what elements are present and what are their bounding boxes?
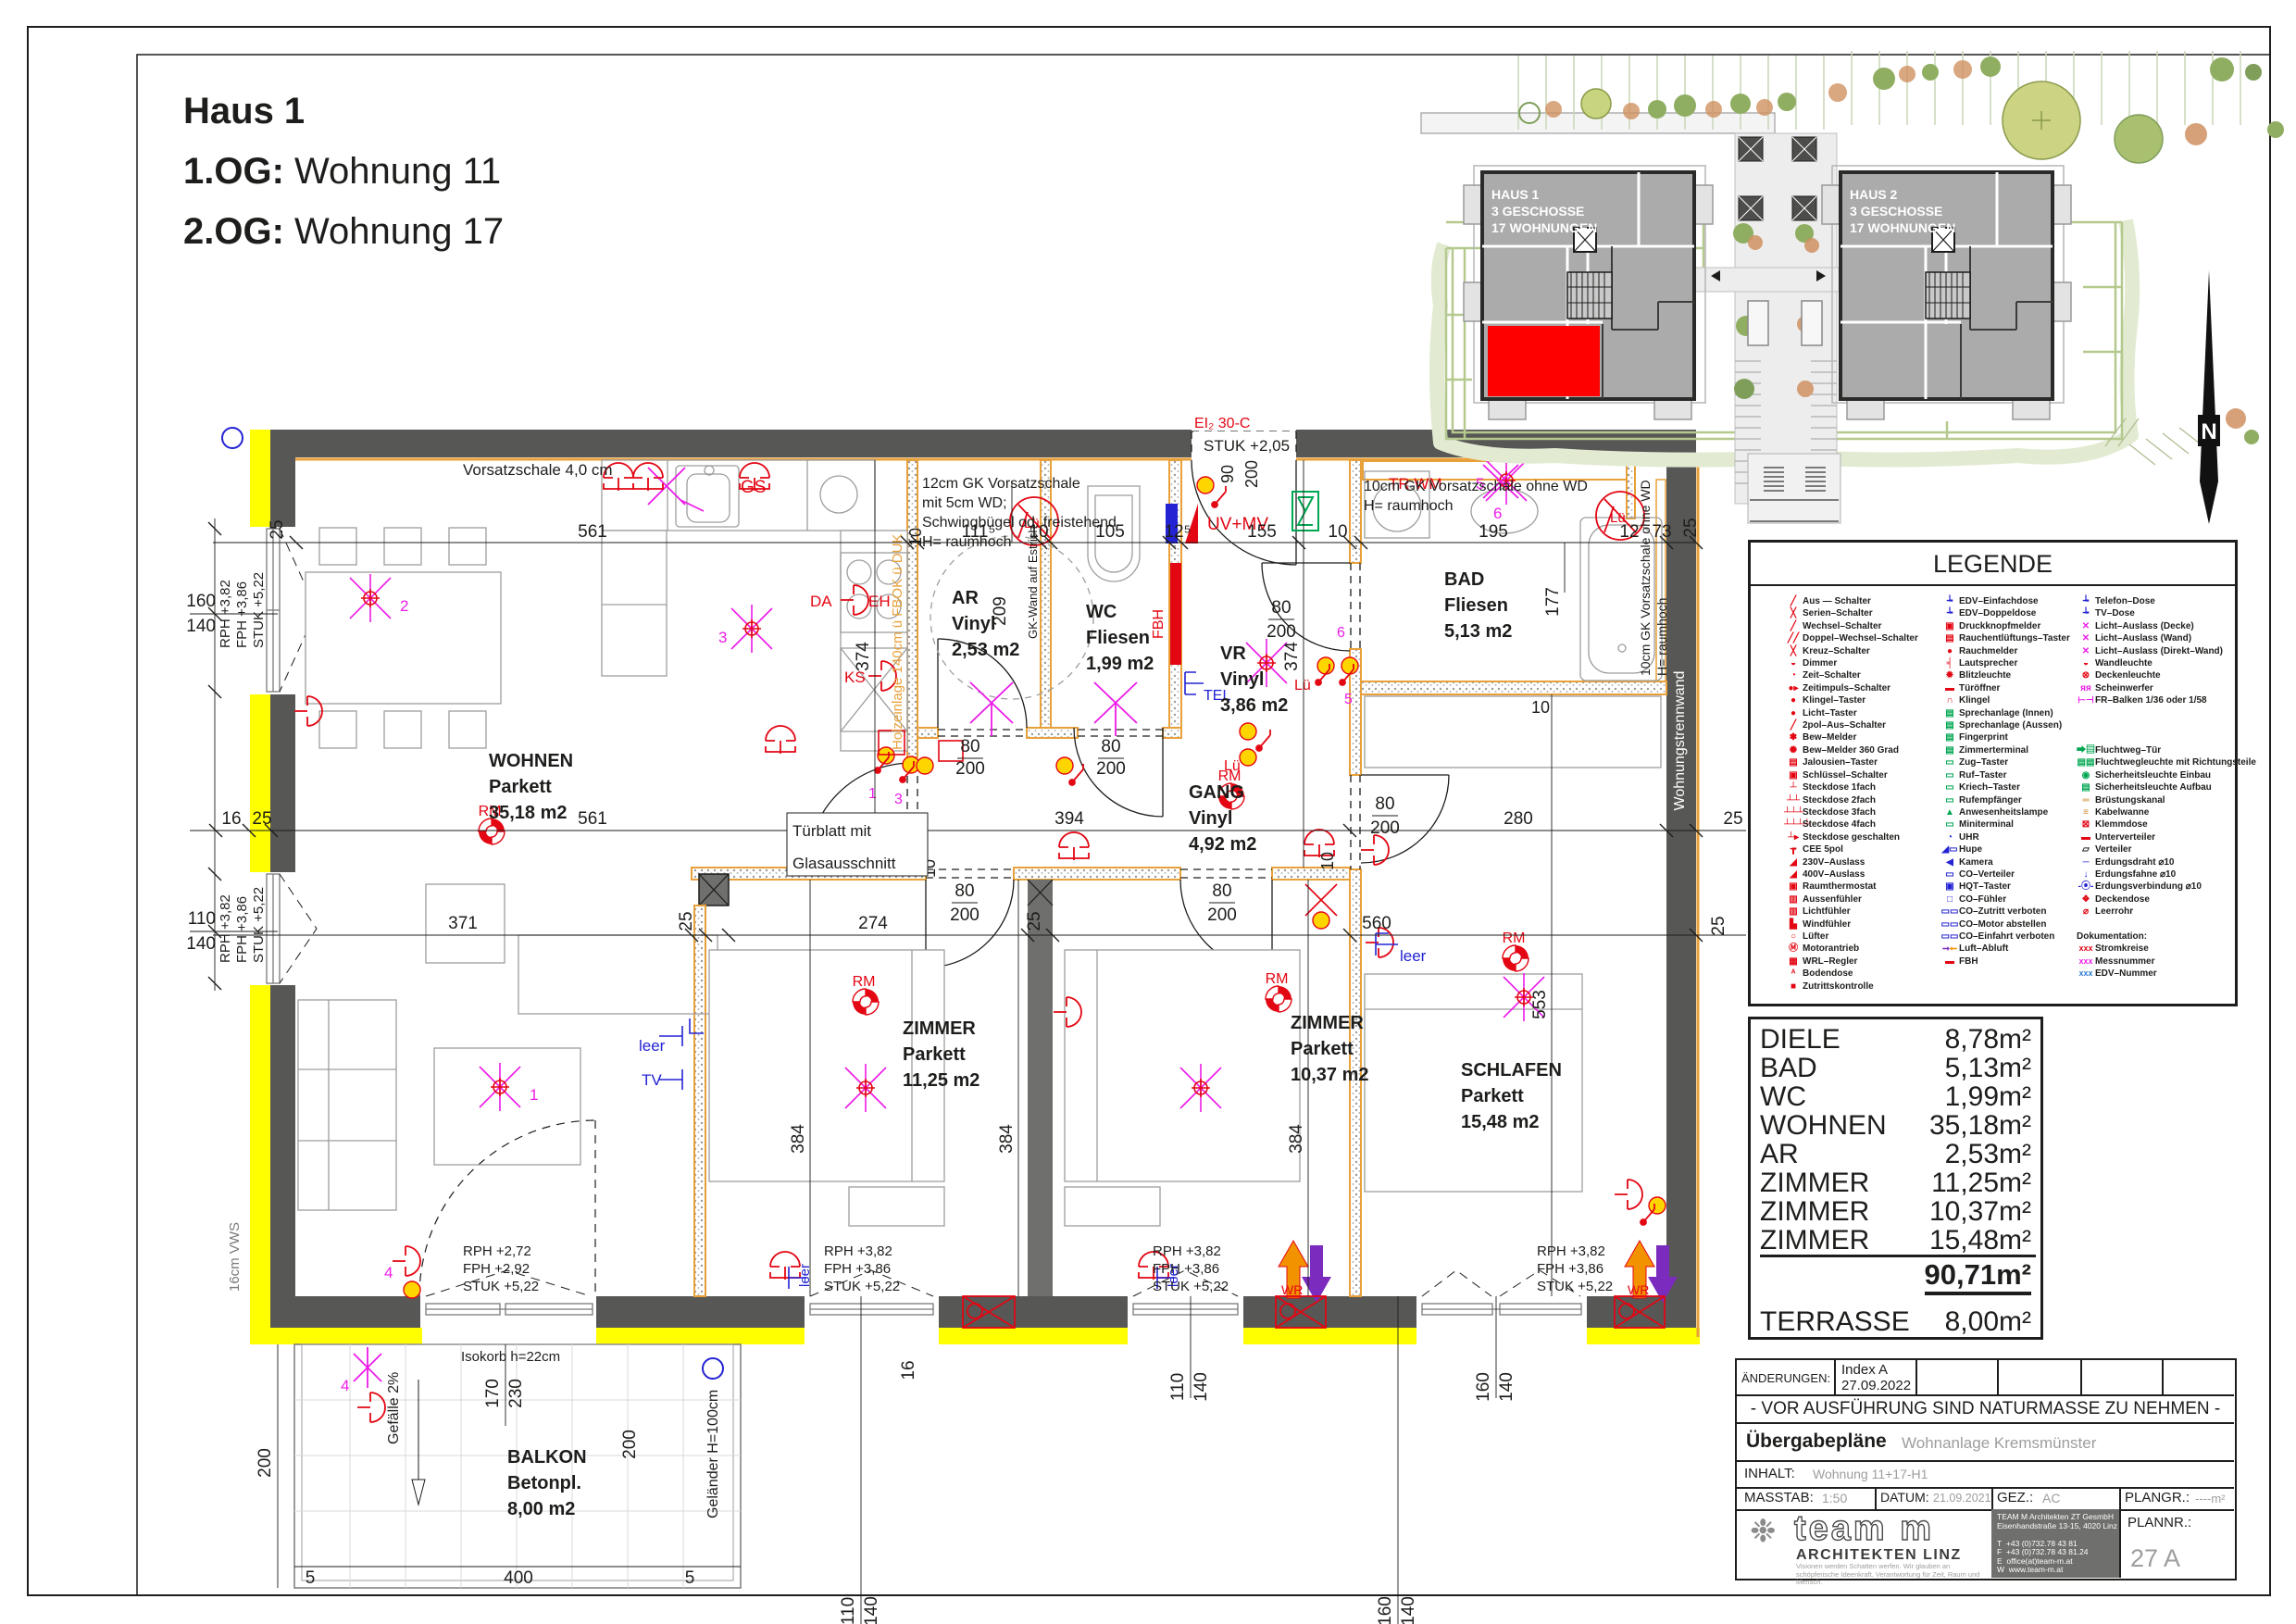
svg-text:H= raumhoch: H= raumhoch [1364, 498, 1454, 514]
svg-text:561: 561 [578, 522, 607, 542]
svg-text:mit 5cm WD;: mit 5cm WD; [922, 495, 1007, 511]
svg-text:25: 25 [1709, 916, 1728, 935]
svg-text:160: 160 [186, 592, 216, 611]
svg-text:6: 6 [1337, 625, 1345, 641]
svg-text:BALKON: BALKON [507, 1447, 587, 1468]
svg-text:10: 10 [1531, 698, 1550, 717]
svg-text:HAUS 1: HAUS 1 [1491, 187, 1540, 202]
svg-text:GANG: GANG [1189, 782, 1244, 803]
svg-text:HAUS 2: HAUS 2 [1850, 187, 1898, 202]
svg-text:394: 394 [1054, 809, 1084, 829]
svg-text:Betonpl.: Betonpl. [507, 1473, 581, 1493]
svg-text:STUK +2,05: STUK +2,05 [1204, 437, 1290, 455]
svg-text:Holzeinlage 140cm ü FBOK ü DUK: Holzeinlage 140cm ü FBOK ü DUK [890, 534, 905, 750]
svg-text:8,00 m2: 8,00 m2 [507, 1499, 575, 1519]
svg-text:3 GESCHOSSE: 3 GESCHOSSE [1850, 204, 1942, 219]
svg-text:FBH: FBH [1151, 609, 1167, 639]
svg-text:STUK +5,22: STUK +5,22 [1537, 1279, 1613, 1294]
svg-text:FPH +3,86: FPH +3,86 [234, 581, 250, 648]
svg-text:N: N [2201, 419, 2216, 444]
svg-text:ZIMMER: ZIMMER [903, 1018, 976, 1039]
svg-text:1,99 m2: 1,99 m2 [1086, 654, 1154, 674]
svg-text:384: 384 [789, 1124, 808, 1154]
svg-text:80: 80 [1375, 794, 1394, 814]
svg-text:80: 80 [1212, 881, 1231, 901]
svg-text:10: 10 [1318, 852, 1337, 870]
svg-text:80: 80 [955, 881, 974, 901]
svg-text:FPH +3,86: FPH +3,86 [1153, 1261, 1219, 1277]
svg-text:195: 195 [1479, 522, 1508, 542]
svg-text:Wohnungstrennwand: Wohnungstrennwand [1672, 671, 1688, 811]
svg-text:16: 16 [221, 809, 241, 829]
svg-text:FPH +3,86: FPH +3,86 [824, 1261, 891, 1277]
svg-text:5,13 m2: 5,13 m2 [1444, 621, 1512, 642]
svg-text:WC: WC [1086, 602, 1117, 622]
svg-text:553: 553 [1530, 990, 1550, 1019]
svg-text:140: 140 [1399, 1596, 1418, 1624]
svg-text:274: 274 [858, 914, 888, 933]
svg-text:EI₂ 30-C: EI₂ 30-C [1194, 416, 1250, 431]
svg-text:200: 200 [1207, 906, 1237, 925]
svg-text:Schwingbügel od. freistehend: Schwingbügel od. freistehend [922, 515, 1117, 531]
svg-text:400: 400 [504, 1568, 533, 1588]
svg-text:12cm GK Vorsatzschale: 12cm GK Vorsatzschale [922, 476, 1080, 492]
svg-text:Gefälle 2%: Gefälle 2% [386, 1372, 402, 1444]
svg-text:200: 200 [950, 906, 980, 925]
svg-text:Parkett: Parkett [1291, 1039, 1354, 1059]
svg-text:110: 110 [188, 909, 216, 929]
svg-text:177: 177 [1543, 587, 1563, 617]
svg-text:10,37 m2: 10,37 m2 [1291, 1065, 1369, 1085]
svg-text:VR: VR [1220, 643, 1246, 664]
svg-text:12⁵: 12⁵ [1164, 522, 1191, 542]
svg-text:STUK +5,22: STUK +5,22 [251, 572, 267, 648]
svg-text:2,53 m2: 2,53 m2 [952, 640, 1019, 660]
svg-text:200: 200 [1242, 460, 1261, 488]
svg-text:5: 5 [306, 1568, 316, 1588]
svg-text:230: 230 [506, 1379, 526, 1408]
svg-text:25: 25 [1723, 809, 1742, 829]
svg-text:110: 110 [839, 1597, 858, 1624]
svg-text:Lü: Lü [1224, 758, 1241, 774]
svg-text:Vinyl: Vinyl [1189, 808, 1232, 829]
svg-text:371: 371 [448, 914, 478, 933]
svg-text:73: 73 [1652, 522, 1671, 542]
svg-text:25: 25 [252, 809, 271, 829]
svg-text:Glasausschnitt: Glasausschnitt [792, 855, 896, 872]
svg-text:3: 3 [894, 792, 903, 807]
svg-text:Türblatt mit: Türblatt mit [792, 822, 871, 840]
svg-text:80: 80 [1271, 598, 1291, 618]
svg-text:155: 155 [1247, 522, 1277, 542]
svg-text:2: 2 [400, 597, 408, 615]
svg-text:Parkett: Parkett [1461, 1086, 1524, 1106]
svg-text:10cm GK Vorsatzschale ohne WD: 10cm GK Vorsatzschale ohne WD [1364, 479, 1588, 494]
svg-text:374: 374 [1282, 642, 1302, 671]
svg-text:200: 200 [955, 759, 985, 779]
svg-text:DA: DA [810, 593, 832, 610]
svg-text:GS: GS [741, 478, 766, 497]
svg-text:16: 16 [899, 1360, 918, 1380]
svg-text:561: 561 [578, 809, 607, 829]
svg-text:384: 384 [997, 1124, 1017, 1154]
svg-text:Vinyl: Vinyl [952, 614, 995, 634]
svg-text:Fliesen: Fliesen [1086, 628, 1150, 648]
svg-text:90: 90 [1218, 465, 1237, 483]
svg-text:35,18 m2: 35,18 m2 [489, 803, 568, 823]
svg-text:1: 1 [868, 786, 877, 802]
svg-text:RPH +2,72: RPH +2,72 [463, 1243, 531, 1259]
svg-text:Isokorb h=22cm: Isokorb h=22cm [461, 1349, 560, 1365]
svg-text:GK-Wand auf Estrich: GK-Wand auf Estrich [1026, 526, 1040, 639]
svg-text:140: 140 [186, 934, 216, 954]
svg-text:Fliesen: Fliesen [1444, 595, 1508, 616]
svg-text:SCHLAFEN: SCHLAFEN [1461, 1060, 1562, 1081]
svg-text:11,25 m2: 11,25 m2 [903, 1070, 980, 1091]
svg-text:RPH +3,82: RPH +3,82 [1537, 1243, 1605, 1259]
svg-text:Geländer H=100cm: Geländer H=100cm [705, 1390, 721, 1518]
svg-text:ZIMMER: ZIMMER [1291, 1013, 1364, 1033]
svg-text:384: 384 [1287, 1124, 1306, 1154]
svg-text:140: 140 [1497, 1372, 1516, 1402]
svg-text:H= raumhoch: H= raumhoch [922, 534, 1012, 550]
svg-text:WOHNEN: WOHNEN [489, 751, 573, 771]
svg-text:STUK +5,22: STUK +5,22 [251, 887, 267, 963]
svg-text:200: 200 [1370, 818, 1400, 838]
svg-text:Parkett: Parkett [489, 777, 552, 797]
svg-text:4,92 m2: 4,92 m2 [1189, 834, 1256, 855]
svg-text:STUK +5,22: STUK +5,22 [824, 1279, 900, 1294]
svg-text:160: 160 [1376, 1596, 1395, 1624]
svg-text:STUK +5,22: STUK +5,22 [463, 1279, 539, 1294]
svg-text:25: 25 [1681, 518, 1701, 537]
svg-text:AR: AR [952, 588, 979, 608]
svg-text:STUK +5,22: STUK +5,22 [1153, 1279, 1229, 1294]
svg-text:200: 200 [620, 1430, 640, 1459]
svg-text:3 GESCHOSSE: 3 GESCHOSSE [1491, 204, 1584, 219]
svg-text:80: 80 [1101, 737, 1120, 756]
svg-text:5: 5 [685, 1568, 695, 1588]
svg-text:3: 3 [718, 629, 727, 646]
svg-text:25: 25 [677, 911, 696, 931]
svg-text:Parkett: Parkett [903, 1044, 966, 1065]
svg-text:FPH +2,92: FPH +2,92 [463, 1261, 530, 1277]
svg-text:170: 170 [483, 1379, 503, 1408]
svg-text:200: 200 [1267, 622, 1296, 642]
svg-text:25: 25 [1025, 911, 1044, 931]
svg-text:560: 560 [1362, 914, 1391, 933]
svg-text:TV: TV [642, 1071, 662, 1089]
svg-text:12: 12 [1619, 522, 1639, 542]
svg-text:6: 6 [1493, 505, 1502, 522]
svg-text:5: 5 [1344, 692, 1353, 707]
svg-text:Vinyl: Vinyl [1220, 669, 1264, 690]
svg-text:17 WOHNUNGEN: 17 WOHNUNGEN [1850, 220, 1955, 235]
svg-text:EH: EH [868, 593, 891, 610]
svg-text:140: 140 [862, 1596, 881, 1624]
svg-text:WR: WR [1628, 1282, 1649, 1297]
svg-text:10: 10 [1328, 522, 1347, 542]
svg-text:4: 4 [384, 1264, 393, 1281]
svg-text:25: 25 [268, 519, 287, 539]
svg-text:160: 160 [1474, 1372, 1493, 1402]
svg-text:FPH +3,86: FPH +3,86 [234, 896, 250, 963]
svg-text:RPH +3,82: RPH +3,82 [824, 1243, 892, 1259]
svg-text:FPH +3,86: FPH +3,86 [1537, 1261, 1603, 1277]
svg-text:BAD: BAD [1444, 569, 1484, 590]
svg-text:10cm GK Vorsatzschale ohne WD: 10cm GK Vorsatzschale ohne WD [1638, 480, 1653, 676]
svg-text:280: 280 [1504, 809, 1533, 829]
svg-text:140: 140 [186, 617, 216, 636]
svg-text:80: 80 [960, 737, 980, 756]
svg-text:17 WOHNUNGEN: 17 WOHNUNGEN [1491, 220, 1597, 235]
svg-text:140: 140 [1192, 1372, 1211, 1402]
svg-text:Vorsatzschale 4,0 cm: Vorsatzschale 4,0 cm [463, 461, 613, 479]
svg-text:1: 1 [530, 1086, 538, 1104]
svg-text:200: 200 [1096, 759, 1126, 779]
svg-text:RPH +3,82: RPH +3,82 [1153, 1243, 1221, 1259]
svg-text:4: 4 [341, 1377, 349, 1394]
svg-text:15,48 m2: 15,48 m2 [1461, 1112, 1540, 1132]
svg-text:leer: leer [639, 1037, 666, 1055]
svg-text:RPH +3,82: RPH +3,82 [218, 580, 233, 648]
svg-text:Lü: Lü [1294, 678, 1311, 693]
svg-text:WR: WR [1281, 1282, 1303, 1297]
svg-text:H= raumhoch: H= raumhoch [1654, 598, 1669, 676]
svg-text:3,86 m2: 3,86 m2 [1220, 695, 1288, 716]
svg-text:leer: leer [1400, 947, 1427, 965]
svg-text:16cm VWS: 16cm VWS [227, 1222, 243, 1292]
svg-text:200: 200 [256, 1448, 275, 1478]
svg-text:374: 374 [854, 642, 873, 671]
svg-text:110: 110 [1168, 1373, 1188, 1401]
svg-text:RPH +3,82: RPH +3,82 [218, 894, 233, 963]
